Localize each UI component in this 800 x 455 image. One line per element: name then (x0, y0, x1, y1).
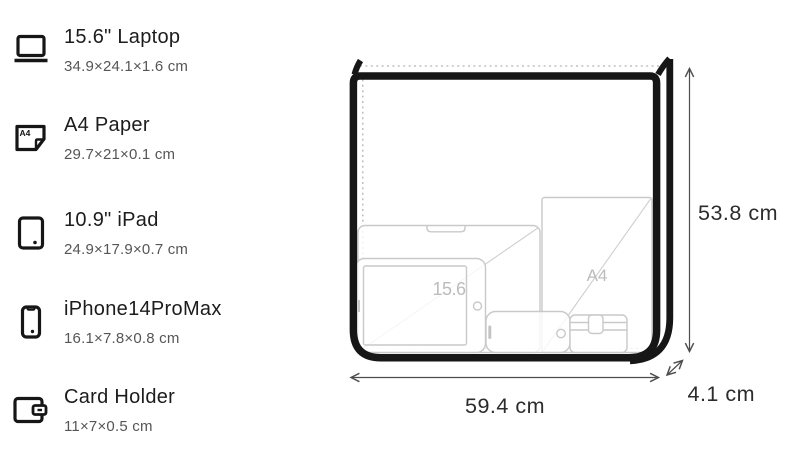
legend-item-dims: 29.7×21×0.1 cm (64, 146, 175, 163)
depth-dimension: 4.1 cm (667, 361, 755, 407)
legend-item-dims: 16.1×7.8×0.8 cm (64, 330, 222, 347)
legend-item-a4-paper: A4 A4 Paper 29.7×21×0.1 cm (8, 110, 175, 166)
iphone-icon (8, 304, 54, 340)
legend-item-iphone: iPhone14ProMax 16.1×7.8×0.8 cm (8, 294, 222, 350)
bag-size-comparison-panel: 15.6 A4 53.8 cm 59.4 cm 4.1 cm (0, 0, 800, 455)
ipad-icon (8, 215, 54, 251)
bag-front-outline (353, 59, 669, 361)
legend-item-laptop: 15.6" Laptop 34.9×24.1×1.6 cm (8, 22, 188, 78)
card-holder-icon (8, 395, 54, 425)
legend-item-title: Card Holder (64, 385, 175, 410)
legend-item-title: 15.6" Laptop (64, 25, 188, 50)
width-dimension: 59.4 cm (351, 378, 659, 419)
item-legend: 15.6" Laptop 34.9×24.1×1.6 cm A4 A4 Pape… (0, 0, 310, 455)
legend-item-title: iPhone14ProMax (64, 297, 222, 322)
legend-item-title: 10.9" iPad (64, 208, 188, 233)
height-dimension: 53.8 cm (690, 69, 778, 352)
width-dimension-label: 59.4 cm (465, 394, 545, 418)
depth-dimension-label: 4.1 cm (688, 382, 756, 406)
legend-item-dims: 24.9×17.9×0.7 cm (64, 241, 188, 258)
a4-paper-icon: A4 (8, 123, 54, 153)
legend-item-ipad: 10.9" iPad 24.9×17.9×0.7 cm (8, 205, 188, 261)
legend-item-card-holder: Card Holder 11×7×0.5 cm (8, 382, 175, 438)
legend-item-dims: 11×7×0.5 cm (64, 418, 175, 435)
legend-item-dims: 34.9×24.1×1.6 cm (64, 58, 188, 75)
laptop-icon (8, 33, 54, 67)
a4-icon-text: A4 (20, 128, 31, 138)
height-dimension-label: 53.8 cm (698, 201, 778, 225)
legend-item-title: A4 Paper (64, 113, 175, 138)
